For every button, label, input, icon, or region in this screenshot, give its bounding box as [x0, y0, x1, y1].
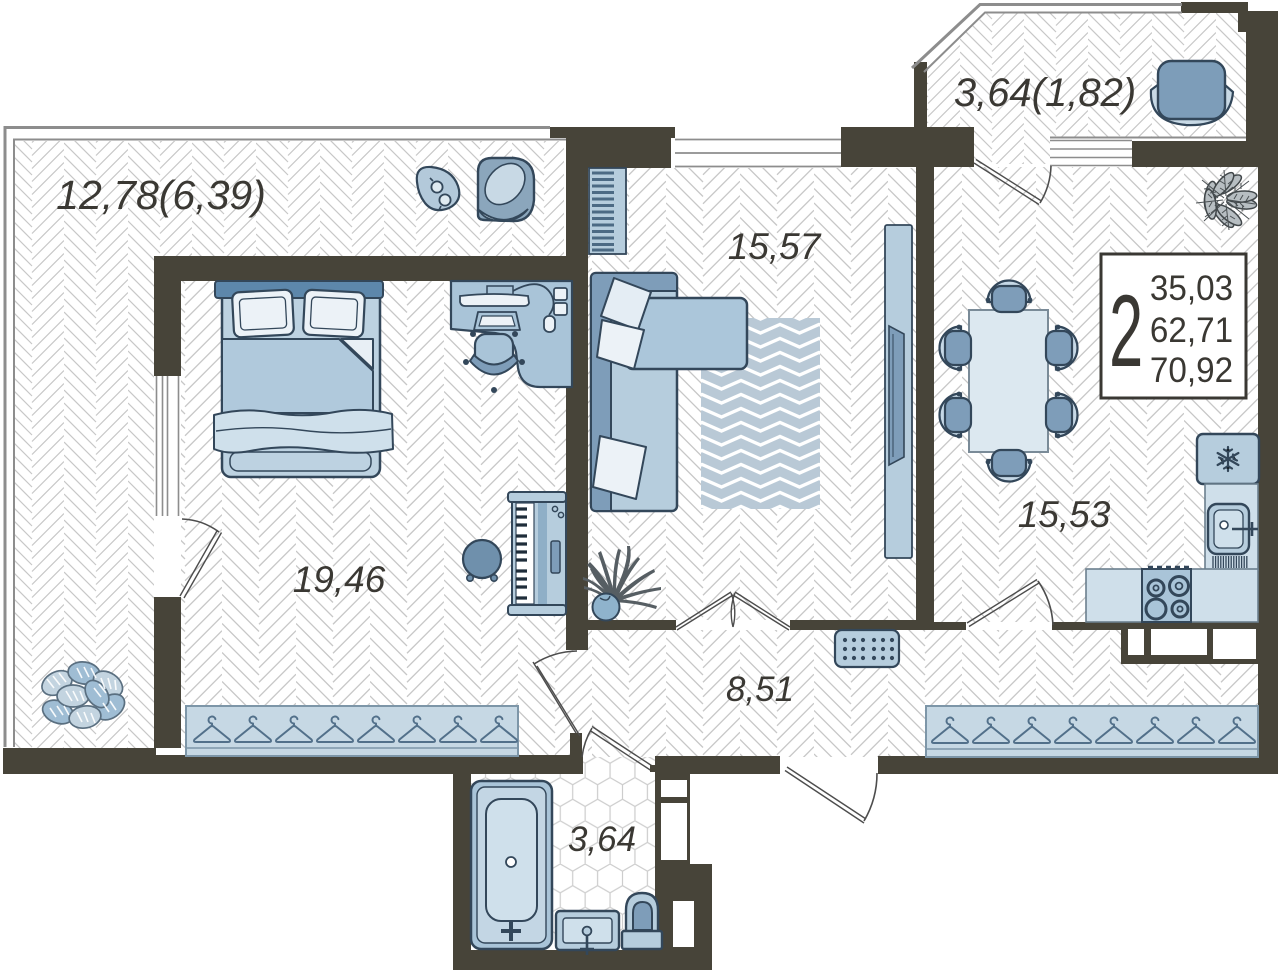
- svg-text:15,57: 15,57: [728, 226, 822, 267]
- svg-text:3,64: 3,64: [568, 820, 636, 859]
- svg-text:35,03: 35,03: [1150, 269, 1233, 308]
- svg-text:2: 2: [1109, 274, 1143, 388]
- svg-text:62,71: 62,71: [1150, 311, 1233, 350]
- svg-text:3,64(1,82): 3,64(1,82): [954, 71, 1136, 115]
- svg-text:70,92: 70,92: [1150, 351, 1233, 390]
- svg-text:12,78(6,39): 12,78(6,39): [56, 172, 266, 218]
- svg-text:19,46: 19,46: [293, 559, 386, 600]
- svg-text:15,53: 15,53: [1018, 494, 1111, 535]
- svg-text:8,51: 8,51: [726, 670, 794, 709]
